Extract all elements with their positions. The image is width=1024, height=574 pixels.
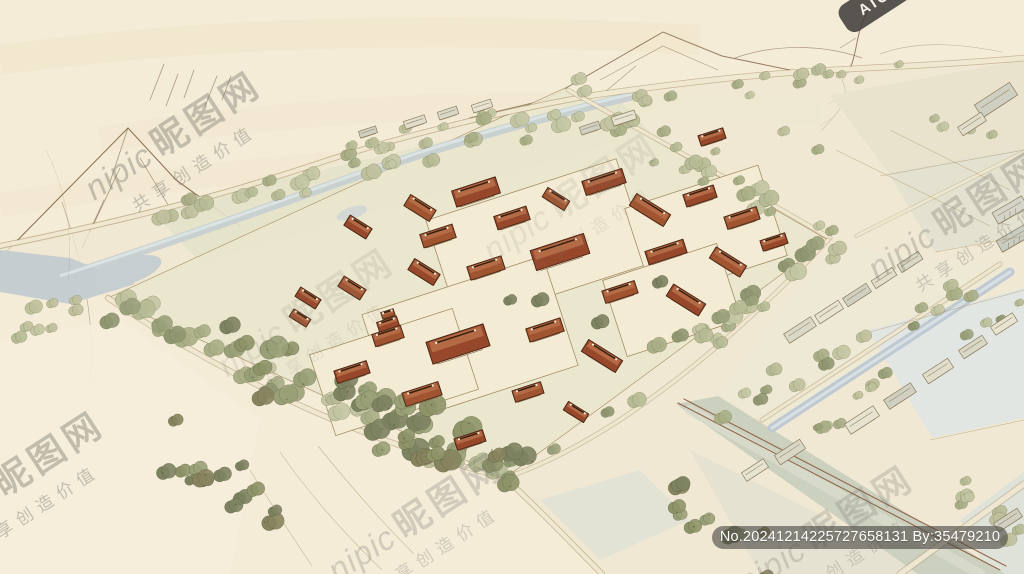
village-house [358,126,377,138]
tree [46,323,58,333]
tree [577,85,592,97]
image-id-band: No.20241214225727658131 By:35479210 [712,526,1008,549]
tree [571,72,587,85]
tree [69,304,84,316]
tree [372,442,390,457]
tree [11,331,27,344]
tree [365,137,379,148]
tree [894,60,903,68]
aerial-temple-illustration [0,0,1024,574]
tree [346,141,358,151]
stock-image-preview: nipic昵图网共享创造价值nipic昵图网共享创造价值nipic昵图网共享创造… [0,0,1024,574]
tree [252,388,275,407]
tree [438,122,449,131]
tree [25,300,43,315]
